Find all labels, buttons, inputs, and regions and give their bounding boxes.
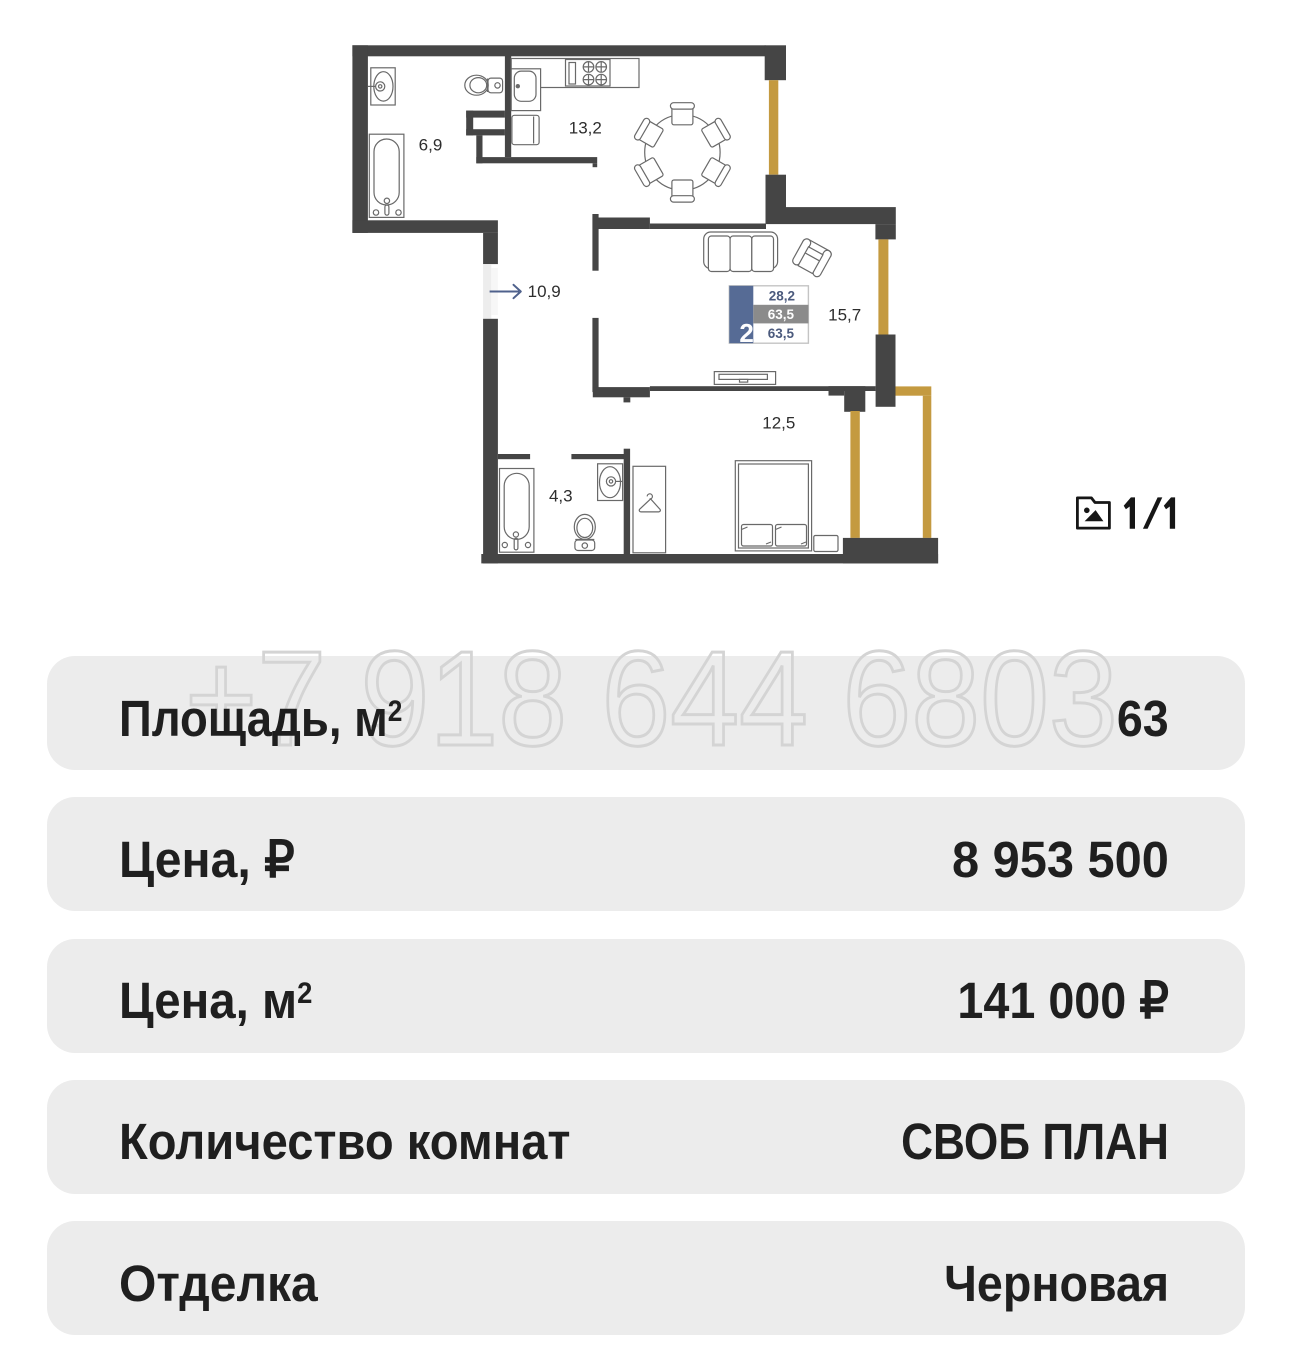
- svg-text:4,3: 4,3: [549, 487, 573, 506]
- svg-text:63,5: 63,5: [768, 307, 795, 322]
- svg-text:28,2: 28,2: [769, 288, 795, 303]
- svg-text:6,9: 6,9: [419, 136, 443, 155]
- svg-text:15,7: 15,7: [828, 306, 861, 325]
- svg-text:13,2: 13,2: [569, 119, 602, 138]
- svg-text:10,9: 10,9: [528, 282, 561, 301]
- svg-text:63,5: 63,5: [768, 326, 795, 341]
- svg-text:12,5: 12,5: [762, 414, 795, 433]
- svg-text:2: 2: [739, 318, 753, 348]
